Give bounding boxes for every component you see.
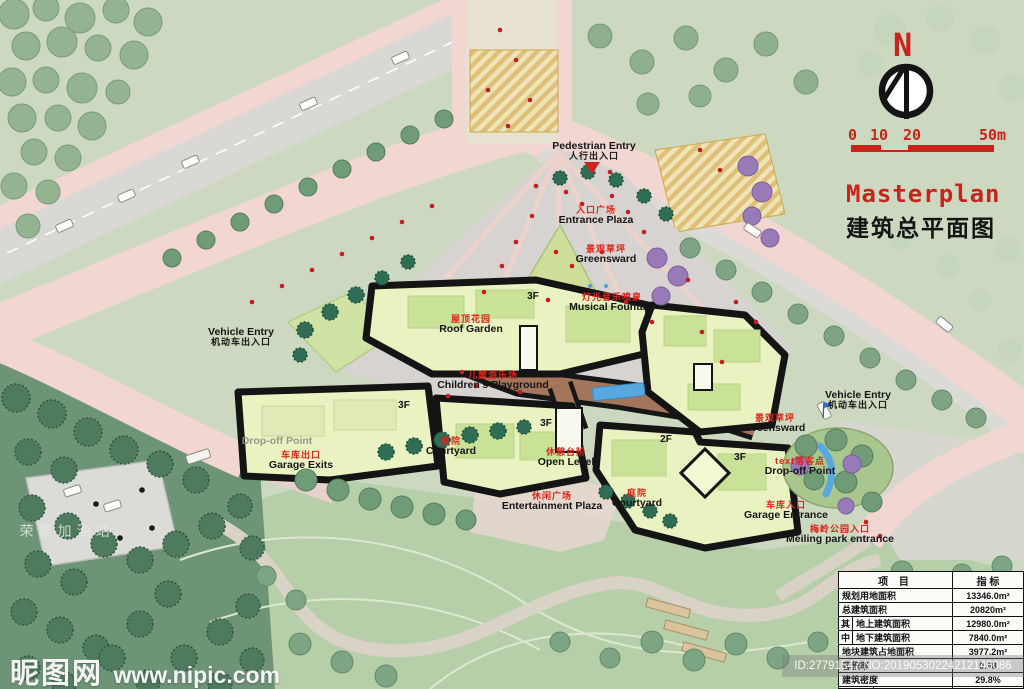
table-row: 其 地上建筑面积 12980.0m² bbox=[839, 617, 1023, 631]
table-row: 总建筑面积 20820m² bbox=[839, 603, 1023, 617]
label-meiling-park-entrance: 梅岭公园入口 Meiling park entrance bbox=[786, 525, 894, 545]
floor-label: 3F bbox=[734, 452, 746, 463]
floor-label: 3F bbox=[398, 400, 410, 411]
label-garage-exits: 车库出口 Garage Exits bbox=[269, 451, 333, 471]
floor-label: 3F bbox=[540, 418, 552, 429]
title-en: Masterplan bbox=[846, 180, 1001, 208]
label-pedestrian-entry: Pedestrian Entry 人行出入口 bbox=[552, 141, 635, 161]
title-zh: 建筑总平面图 bbox=[846, 209, 1001, 243]
label-garage-entrance: 车库入口 Garage Entrance bbox=[744, 501, 828, 521]
label-entrance-plaza: 入口广场 Entrance Plaza bbox=[559, 206, 634, 226]
scale-bar: 0 10 20 50m bbox=[846, 126, 1016, 154]
label-greensward-top: 景观草坪 Greensward bbox=[576, 245, 637, 265]
drawing-title: Masterplan 建筑总平面图 bbox=[846, 180, 1001, 243]
label-roof-garden: 屋顶花园 Roof Garden bbox=[439, 315, 503, 335]
table-row: 规划用地面积 13346.0m² bbox=[839, 589, 1023, 603]
table-header-row: 项 目 指 标 bbox=[839, 572, 1023, 589]
label-greensward-right: 景观草坪 Greensward bbox=[745, 414, 806, 434]
north-compass-icon bbox=[872, 58, 942, 128]
label-vehicle-entry-left: Vehicle Entry 机动车出入口 bbox=[208, 327, 274, 347]
label-gas-station: 荣泰加油站 bbox=[20, 524, 115, 539]
crosswalk-top bbox=[470, 50, 558, 132]
label-courtyard-right: 庭院 Courtyard bbox=[612, 489, 662, 509]
label-drop-off-right: text落客点 Drop-off Point bbox=[765, 457, 836, 477]
label-entertainment-plaza: 休闲广场 Entertainment Plaza bbox=[502, 492, 602, 512]
nipic-logo: 昵图网 bbox=[10, 658, 103, 689]
image-id-watermark: ID:27791547 NO:20190530224212146086 bbox=[782, 655, 1024, 677]
floor-label: 2F bbox=[660, 434, 672, 445]
floor-label: 3F bbox=[527, 291, 539, 302]
label-vehicle-entry-right: Vehicle Entry 机动车出入口 bbox=[825, 390, 891, 410]
nipic-watermark: 昵图网 www.nipic.com bbox=[10, 650, 280, 689]
label-courtyard-left: 庭院 Courtyard bbox=[426, 437, 476, 457]
label-childrens-playground: 儿童游乐场 Children's Playground bbox=[437, 371, 549, 391]
label-open-level: 休憩台阶 Open Level bbox=[538, 448, 595, 468]
table-row: 中 地下建筑面积 7840.0m² bbox=[839, 631, 1023, 645]
label-musical-fountain: 灯光音乐喷泉 Musical Fountain bbox=[569, 293, 655, 313]
masterplan-screenshot: Pedestrian Entry 人行出入口 入口广场 Entrance Pla… bbox=[0, 0, 1024, 689]
nipic-url: www.nipic.com bbox=[113, 662, 280, 688]
label-drop-off-left: Drop-off Point bbox=[242, 436, 313, 447]
